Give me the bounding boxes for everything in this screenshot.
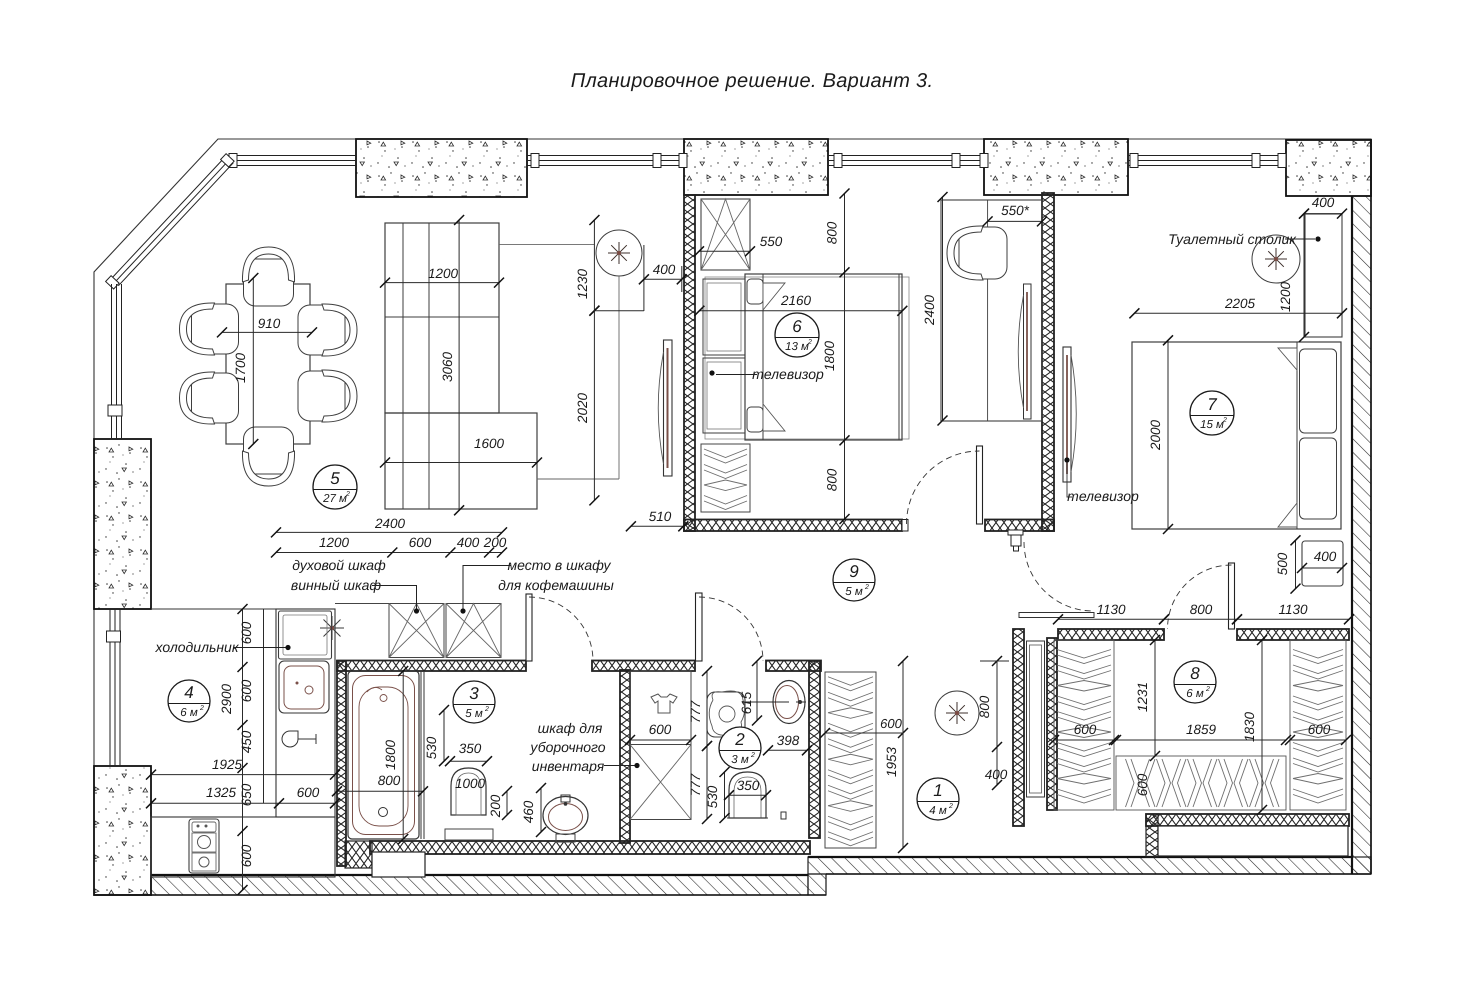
svg-text:2: 2 — [750, 752, 755, 759]
svg-text:1325: 1325 — [206, 785, 237, 800]
svg-text:200: 200 — [488, 794, 503, 818]
svg-text:600: 600 — [409, 535, 432, 550]
svg-text:777: 777 — [688, 700, 703, 723]
svg-text:2000: 2000 — [1148, 419, 1163, 451]
svg-text:2400: 2400 — [922, 294, 937, 326]
svg-text:800: 800 — [825, 221, 840, 244]
svg-text:1: 1 — [933, 781, 942, 800]
svg-text:550*: 550* — [1001, 203, 1030, 218]
svg-text:450: 450 — [239, 730, 254, 753]
svg-text:1830: 1830 — [1242, 711, 1257, 742]
svg-text:телевизор: телевизор — [1067, 488, 1139, 504]
svg-text:2: 2 — [948, 803, 953, 810]
svg-text:4 м: 4 м — [929, 805, 947, 817]
svg-text:800: 800 — [977, 695, 992, 718]
svg-text:1200: 1200 — [428, 266, 459, 281]
svg-text:для кофемашины: для кофемашины — [498, 577, 614, 593]
svg-text:2400: 2400 — [374, 516, 406, 531]
svg-text:600: 600 — [1308, 722, 1331, 737]
svg-text:200: 200 — [483, 535, 507, 550]
svg-text:1700: 1700 — [233, 352, 248, 383]
svg-text:1953: 1953 — [884, 746, 899, 777]
svg-text:1000: 1000 — [455, 776, 486, 791]
svg-text:2: 2 — [484, 706, 489, 713]
svg-text:3: 3 — [469, 684, 479, 703]
svg-text:инвентаря: инвентаря — [532, 758, 605, 774]
svg-text:3060: 3060 — [440, 351, 455, 382]
svg-text:1859: 1859 — [1186, 722, 1217, 737]
svg-text:холодильник: холодильник — [155, 639, 240, 655]
svg-text:800: 800 — [825, 468, 840, 491]
svg-text:духовой шкаф: духовой шкаф — [292, 557, 386, 573]
svg-text:2: 2 — [807, 339, 812, 346]
svg-text:600: 600 — [1074, 722, 1097, 737]
svg-text:400: 400 — [653, 262, 676, 277]
svg-text:5: 5 — [330, 469, 340, 488]
svg-text:телевизор: телевизор — [752, 366, 824, 382]
svg-text:2: 2 — [345, 491, 350, 498]
svg-text:1200: 1200 — [1278, 281, 1293, 312]
svg-text:1800: 1800 — [822, 340, 837, 371]
svg-text:9: 9 — [849, 562, 859, 581]
svg-text:600: 600 — [239, 844, 254, 867]
svg-text:1925: 1925 — [212, 757, 243, 772]
svg-text:600: 600 — [297, 785, 320, 800]
svg-text:Планировочное решение. Вариант: Планировочное решение. Вариант 3. — [571, 70, 934, 92]
svg-text:15 м: 15 м — [1200, 419, 1224, 431]
svg-text:Туалетный столик: Туалетный столик — [1168, 231, 1297, 247]
svg-text:1230: 1230 — [575, 268, 590, 299]
svg-text:400: 400 — [1314, 549, 1337, 564]
svg-text:5 м: 5 м — [845, 586, 863, 598]
svg-text:600: 600 — [1135, 773, 1150, 796]
svg-text:6 м: 6 м — [1186, 688, 1204, 700]
svg-text:2205: 2205 — [1224, 296, 1256, 311]
svg-text:460: 460 — [521, 800, 536, 823]
svg-text:2: 2 — [734, 730, 745, 749]
svg-text:350: 350 — [737, 778, 760, 793]
svg-text:4: 4 — [184, 683, 193, 702]
svg-text:13 м: 13 м — [785, 341, 809, 353]
svg-text:530: 530 — [705, 785, 720, 808]
svg-text:615: 615 — [739, 691, 754, 714]
svg-text:398: 398 — [777, 733, 800, 748]
svg-text:600: 600 — [239, 679, 254, 702]
svg-text:510: 510 — [649, 509, 672, 524]
svg-text:550: 550 — [760, 234, 783, 249]
svg-text:1200: 1200 — [319, 535, 350, 550]
svg-text:400: 400 — [457, 535, 480, 550]
svg-text:6: 6 — [792, 317, 802, 336]
svg-text:винный шкаф: винный шкаф — [291, 577, 381, 593]
svg-text:1800: 1800 — [383, 739, 398, 770]
svg-text:27 м: 27 м — [322, 493, 347, 505]
svg-text:2020: 2020 — [575, 392, 590, 424]
svg-text:1130: 1130 — [1278, 602, 1308, 617]
svg-text:530: 530 — [424, 736, 439, 759]
svg-text:800: 800 — [1190, 602, 1213, 617]
svg-text:2: 2 — [864, 584, 869, 591]
svg-text:7: 7 — [1207, 395, 1217, 414]
svg-text:2900: 2900 — [219, 683, 234, 715]
svg-text:350: 350 — [459, 741, 482, 756]
svg-text:600: 600 — [880, 716, 902, 731]
svg-text:2160: 2160 — [780, 293, 812, 308]
svg-text:5 м: 5 м — [465, 708, 483, 720]
svg-text:уборочного: уборочного — [529, 739, 605, 755]
svg-text:1231: 1231 — [1135, 682, 1150, 712]
svg-text:600: 600 — [649, 722, 672, 737]
svg-text:777: 777 — [688, 773, 703, 796]
svg-text:3 м: 3 м — [731, 754, 749, 766]
svg-text:2: 2 — [199, 705, 204, 712]
svg-text:2: 2 — [1205, 686, 1210, 693]
svg-text:600: 600 — [239, 621, 254, 644]
svg-text:1600: 1600 — [474, 436, 505, 451]
svg-text:800: 800 — [378, 773, 401, 788]
svg-text:шкаф для: шкаф для — [538, 720, 603, 736]
svg-text:910: 910 — [258, 316, 281, 331]
svg-text:место в шкафу: место в шкафу — [507, 557, 611, 573]
svg-text:400: 400 — [985, 767, 1008, 782]
svg-text:400: 400 — [1312, 195, 1335, 210]
svg-text:500: 500 — [1275, 552, 1290, 575]
svg-text:6 м: 6 м — [180, 707, 198, 719]
svg-text:8: 8 — [1190, 664, 1200, 683]
svg-text:2: 2 — [1222, 417, 1227, 424]
svg-text:1130: 1130 — [1096, 602, 1126, 617]
